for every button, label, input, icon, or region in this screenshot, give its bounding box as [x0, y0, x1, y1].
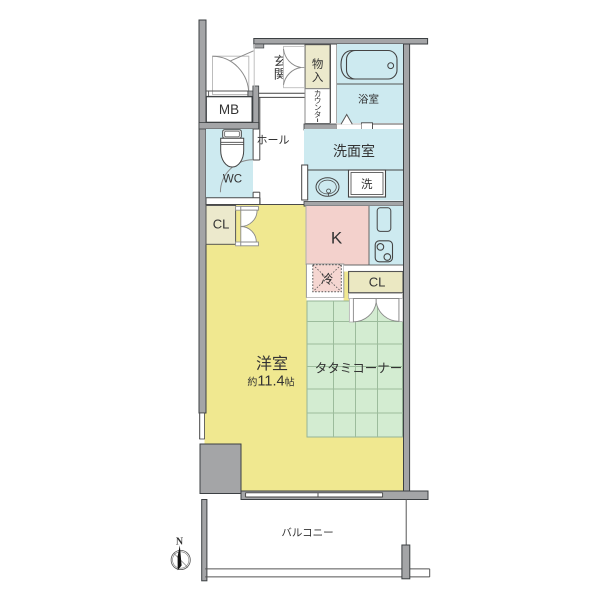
svg-text:ホール: ホール: [257, 134, 290, 147]
svg-text:K: K: [331, 229, 343, 248]
svg-text:バルコニー: バルコニー: [281, 527, 333, 539]
svg-text:N: N: [176, 537, 184, 548]
svg-text:CL: CL: [369, 275, 386, 290]
svg-text:タタミコーナー: タタミコーナー: [315, 362, 403, 376]
svg-text:洗: 洗: [361, 178, 373, 191]
svg-text:冷: 冷: [321, 273, 334, 287]
svg-text:洋室: 洋室: [256, 355, 288, 373]
svg-text:洗面室: 洗面室: [333, 143, 375, 159]
svg-text:物: 物: [312, 57, 324, 71]
svg-text:MB: MB: [219, 102, 239, 117]
svg-text:浴室: 浴室: [358, 93, 379, 106]
svg-text:タ: タ: [314, 110, 322, 119]
svg-text:CL: CL: [213, 217, 230, 232]
svg-text:WC: WC: [223, 174, 242, 186]
svg-text:入: 入: [312, 71, 324, 84]
